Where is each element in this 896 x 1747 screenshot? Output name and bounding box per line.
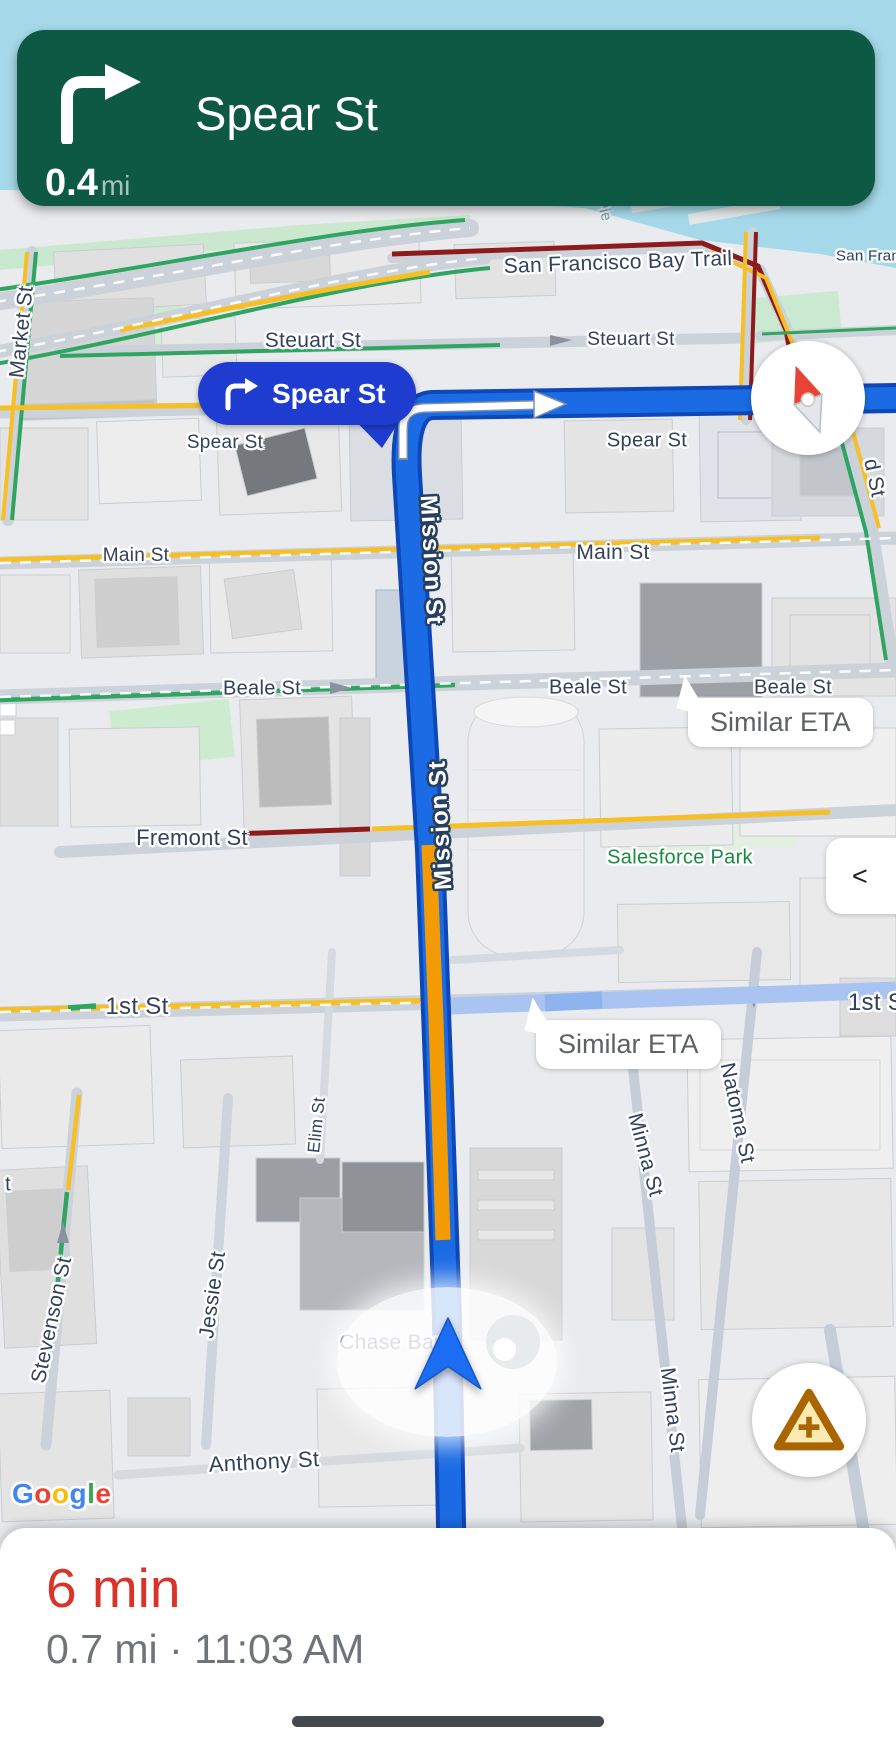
google-logo-letter: o xyxy=(34,1478,52,1509)
navigation-instruction-banner[interactable]: 0.4mi Spear St xyxy=(17,30,875,206)
google-logo-letter: g xyxy=(70,1478,88,1509)
trip-summary-sheet[interactable]: 6 min 0.7 mi · 11:03 AM xyxy=(0,1528,896,1747)
report-incident-warning-icon xyxy=(769,1380,849,1460)
eta-bubbles-layer: Similar ETASimilar ETA xyxy=(0,0,896,1747)
distance-value: 0.4 xyxy=(45,162,98,204)
trip-eta: 6 min xyxy=(46,1556,181,1620)
google-logo-letter: o xyxy=(52,1478,70,1509)
chevron-left-icon: < xyxy=(852,861,868,892)
google-maps-navigation-screen: PieSan Francisco Bay TrailSan FranSteuar… xyxy=(0,0,896,1747)
compass-needle-icon xyxy=(767,357,849,439)
google-logo-letter: G xyxy=(12,1478,34,1509)
trip-distance-arrival: 0.7 mi · 11:03 AM xyxy=(46,1626,364,1673)
maneuver-street-name: Spear St xyxy=(195,86,378,141)
report-incident-button[interactable] xyxy=(752,1363,866,1477)
similar-eta-bubble[interactable]: Similar ETA xyxy=(688,698,873,747)
distance-unit: mi xyxy=(101,170,131,201)
similar-eta-bubble[interactable]: Similar ETA xyxy=(536,1020,721,1069)
maneuver-distance: 0.4mi xyxy=(45,162,130,205)
similar-eta-label: Similar ETA xyxy=(558,1029,699,1059)
similar-eta-label: Similar ETA xyxy=(710,707,851,737)
collapse-panel-button[interactable]: < xyxy=(826,838,896,914)
google-watermark: Google xyxy=(12,1478,111,1510)
turn-right-icon xyxy=(47,52,151,144)
compass-button[interactable] xyxy=(751,341,865,455)
home-indicator-handle[interactable] xyxy=(292,1716,604,1727)
google-logo-letter: e xyxy=(95,1478,111,1509)
